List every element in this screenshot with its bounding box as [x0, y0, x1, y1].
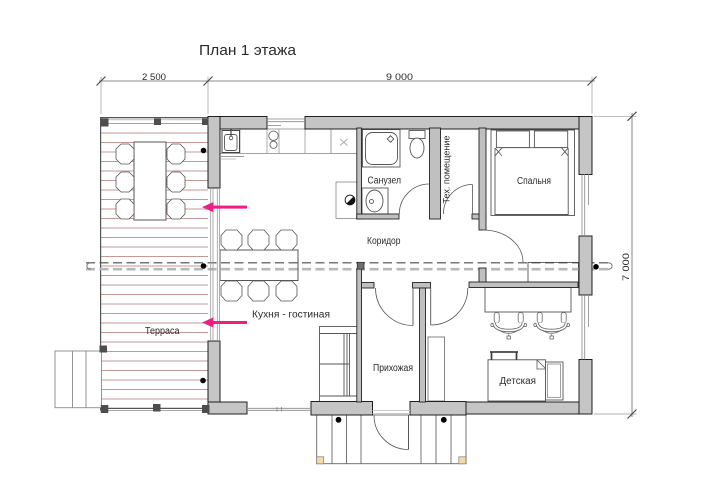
svg-text:План 1 этажа: План 1 этажа: [199, 42, 297, 59]
svg-text:Санузел: Санузел: [368, 176, 402, 187]
svg-text:7 000: 7 000: [621, 253, 632, 281]
svg-text:2 500: 2 500: [142, 72, 166, 83]
svg-text:Кухня - гостиная: Кухня - гостиная: [252, 310, 330, 321]
svg-text:Тех. помещение: Тех. помещение: [441, 136, 452, 204]
svg-text:Детская: Детская: [500, 376, 537, 387]
svg-text:Спальня: Спальня: [517, 176, 551, 187]
svg-text:9 000: 9 000: [386, 72, 413, 83]
svg-text:Коридор: Коридор: [367, 236, 401, 247]
svg-text:Терраса: Терраса: [145, 326, 180, 337]
svg-text:Прихожая: Прихожая: [373, 363, 413, 374]
